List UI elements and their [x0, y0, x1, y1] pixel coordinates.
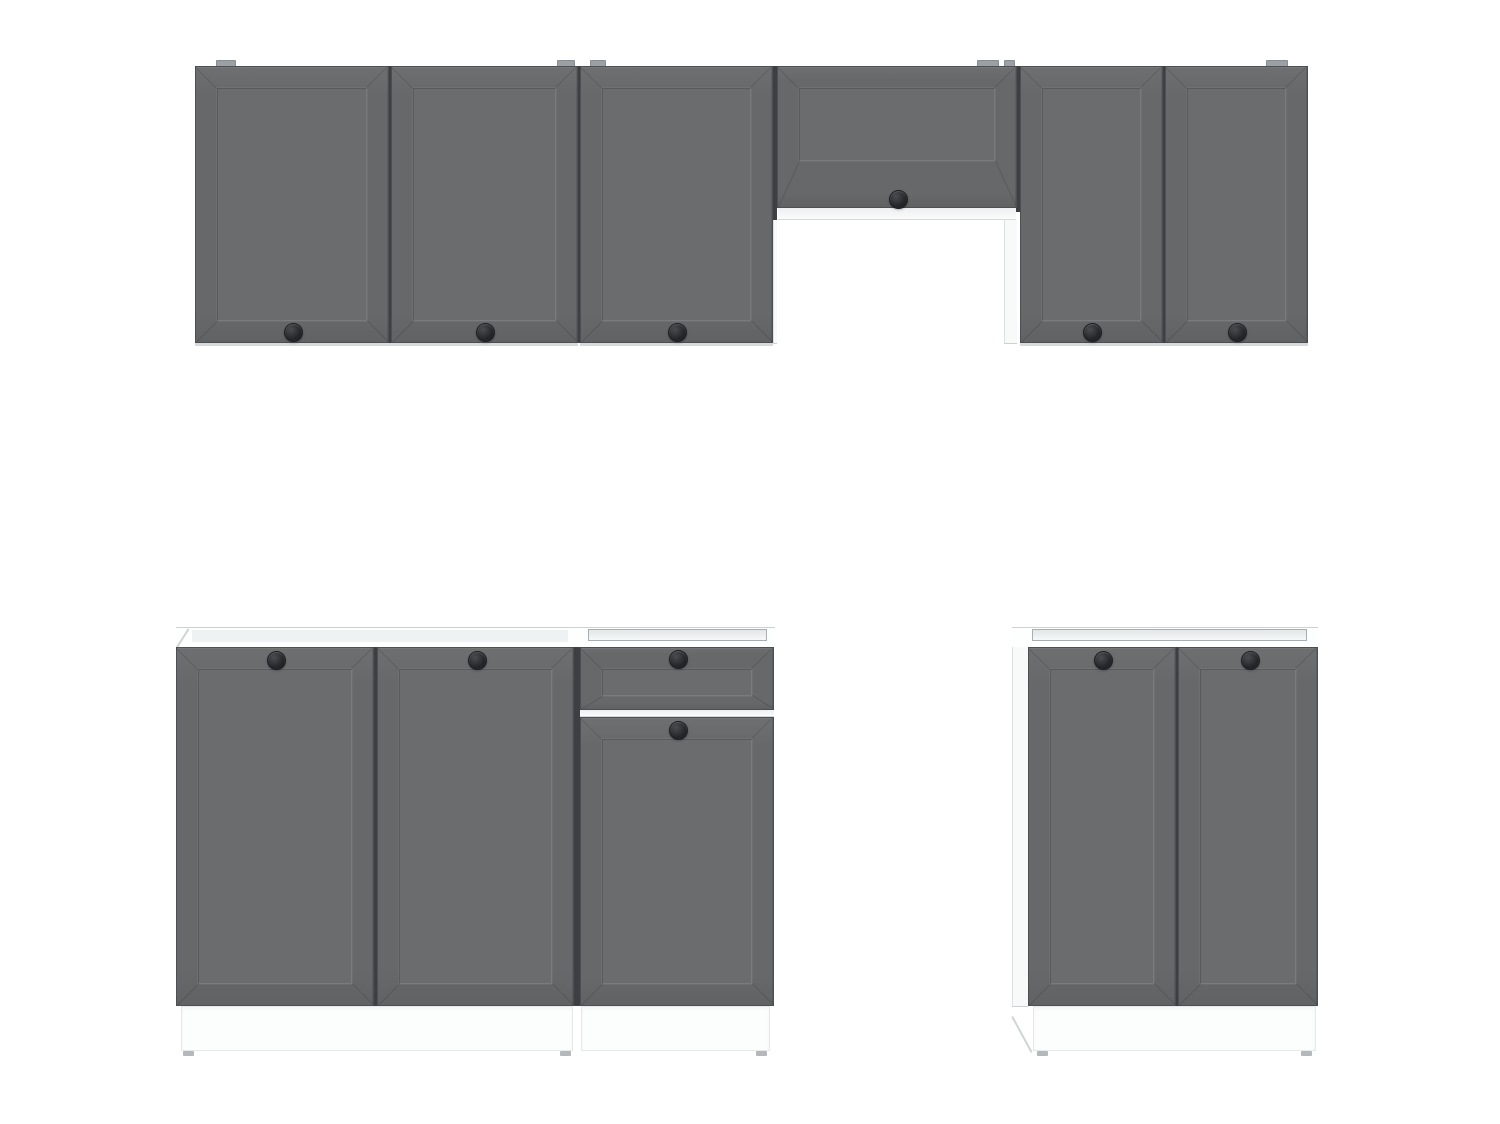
frame-miter-line	[581, 984, 603, 1006]
frame-miter-line	[1153, 647, 1175, 669]
door-panel	[1200, 669, 1296, 984]
base-cabinets-row	[0, 0, 1500, 1124]
plinth-foot	[1301, 1051, 1312, 1056]
frame-miter-line	[552, 983, 574, 1005]
frame-miter-line	[177, 984, 199, 1006]
carcass-top-recess	[1032, 629, 1307, 641]
frame-miter-line	[1154, 983, 1176, 1005]
frame-miter-line	[352, 983, 374, 1005]
frame-miter-line	[580, 648, 602, 670]
frame-miter-line	[1178, 648, 1200, 670]
door-panel	[399, 669, 552, 984]
frame-miter-line	[751, 717, 773, 739]
frame-miter-line	[581, 696, 603, 710]
plinth-foot	[560, 1051, 571, 1056]
plinth-panel	[1033, 1006, 1316, 1051]
plinth-foot	[756, 1051, 767, 1056]
door-knob	[1241, 651, 1260, 670]
door-knob	[267, 651, 286, 670]
drawer-gap-strip	[580, 710, 774, 717]
frame-miter-line	[751, 647, 773, 669]
frame-miter-line	[1028, 648, 1050, 670]
carcass-top-recess	[588, 629, 767, 641]
door-knob	[1094, 651, 1113, 670]
base-door-3	[580, 717, 774, 1006]
carcass-open-top-shading	[192, 630, 568, 642]
door-panel	[198, 669, 352, 984]
frame-miter-line	[551, 647, 573, 669]
frame-miter-line	[378, 984, 400, 1006]
side-panel-edge-line	[1012, 1016, 1033, 1053]
door-panel	[602, 669, 752, 696]
door-panel	[1050, 669, 1154, 984]
frame-miter-line	[752, 695, 774, 709]
door-knob	[669, 650, 688, 669]
frame-miter-line	[377, 648, 399, 670]
base-door-2	[377, 647, 574, 1006]
frame-miter-line	[351, 647, 373, 669]
frame-miter-line	[1029, 984, 1051, 1006]
drawer-front	[580, 647, 774, 710]
frame-miter-line	[1295, 647, 1317, 669]
base-door-1	[176, 647, 374, 1006]
base-door-5	[1178, 647, 1318, 1006]
frame-miter-line	[1179, 984, 1201, 1006]
door-panel	[602, 739, 752, 984]
plinth-panel	[181, 1006, 573, 1051]
base-cabinet-side-panel	[1012, 647, 1028, 1007]
frame-miter-line	[580, 718, 602, 740]
base-door-4	[1028, 647, 1176, 1006]
plinth-panel	[581, 1006, 770, 1051]
frame-miter-line	[176, 648, 198, 670]
plinth-foot	[183, 1051, 194, 1056]
kitchen-cabinet-set-image	[0, 0, 1500, 1124]
door-knob	[669, 721, 688, 740]
plinth-foot	[1037, 1051, 1048, 1056]
frame-miter-line	[752, 983, 774, 1005]
frame-miter-line	[1296, 983, 1318, 1005]
door-knob	[468, 651, 487, 670]
